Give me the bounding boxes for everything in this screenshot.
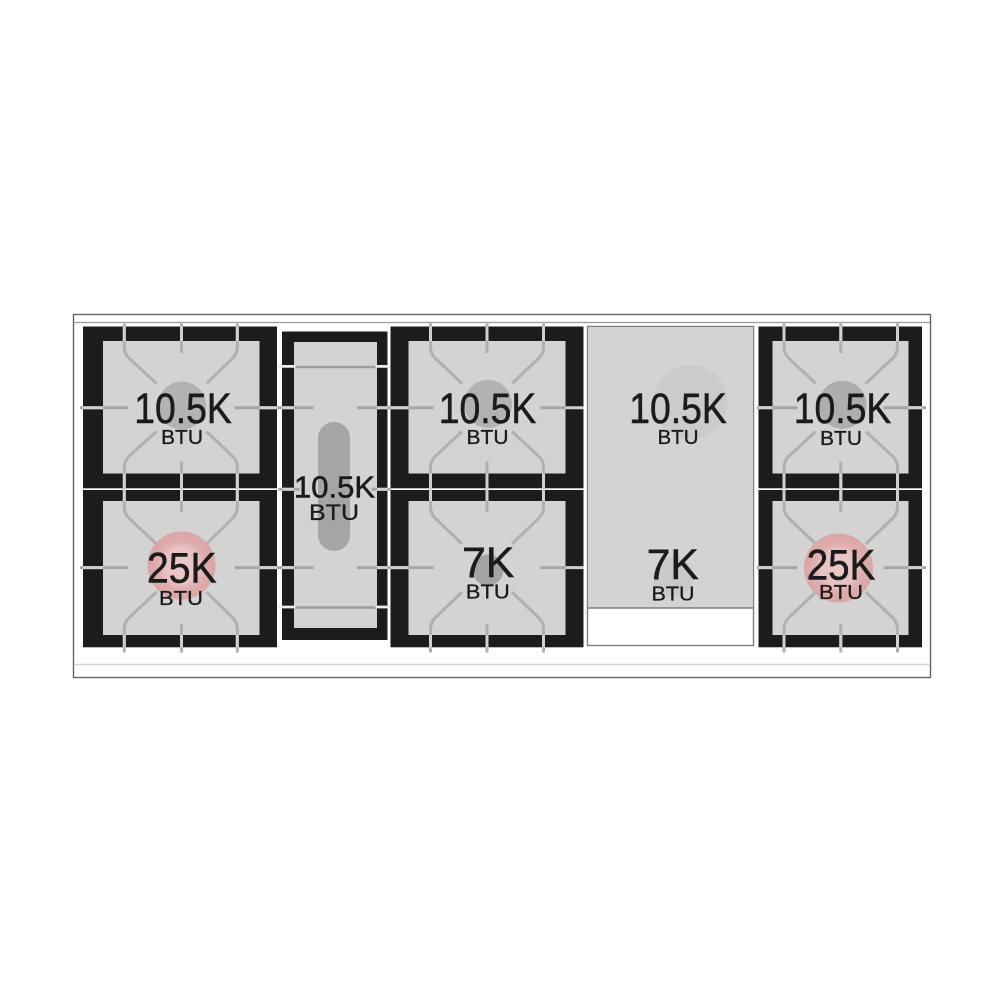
svg-text:BTU: BTU xyxy=(652,582,695,605)
svg-text:10.5K: 10.5K xyxy=(439,385,537,432)
svg-text:10.5K: 10.5K xyxy=(629,385,727,432)
svg-text:BTU: BTU xyxy=(309,500,359,525)
svg-text:7K: 7K xyxy=(462,539,514,586)
svg-text:BTU: BTU xyxy=(159,587,203,610)
svg-text:BTU: BTU xyxy=(466,581,510,604)
svg-text:10.5K: 10.5K xyxy=(794,385,892,432)
svg-text:BTU: BTU xyxy=(819,581,863,604)
svg-text:10.5K: 10.5K xyxy=(134,385,232,432)
svg-text:BTU: BTU xyxy=(658,427,699,449)
svg-text:BTU: BTU xyxy=(467,427,509,449)
svg-text:7K: 7K xyxy=(647,541,699,588)
svg-text:BTU: BTU xyxy=(161,427,203,449)
svg-text:BTU: BTU xyxy=(820,428,862,450)
svg-text:25K: 25K xyxy=(147,545,217,592)
